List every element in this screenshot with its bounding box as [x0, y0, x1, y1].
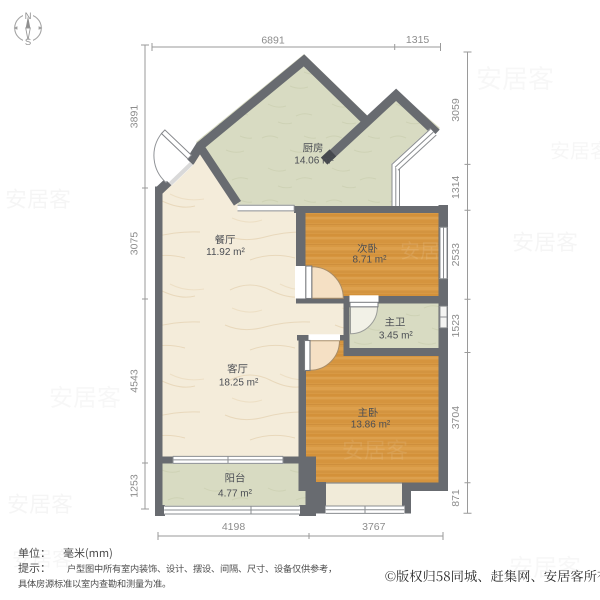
svg-text:3.45 m²: 3.45 m² [379, 330, 414, 341]
svg-text:2533: 2533 [450, 243, 462, 267]
svg-text:1315: 1315 [406, 34, 430, 46]
svg-text:3891: 3891 [129, 105, 141, 129]
svg-text:871: 871 [450, 489, 462, 507]
svg-text:4198: 4198 [222, 521, 246, 533]
svg-text:3704: 3704 [450, 406, 462, 430]
svg-text:3059: 3059 [450, 98, 462, 122]
svg-text:14.06 m²: 14.06 m² [294, 156, 334, 167]
svg-text:1253: 1253 [129, 474, 141, 498]
svg-text:3767: 3767 [362, 521, 386, 533]
svg-text:4.77 m²: 4.77 m² [218, 489, 253, 500]
svg-text:11.92 m²: 11.92 m² [206, 247, 245, 258]
svg-text:3075: 3075 [129, 232, 141, 256]
svg-text:13.86 m²: 13.86 m² [351, 419, 391, 430]
svg-text:8.71 m²: 8.71 m² [353, 254, 388, 265]
svg-text:6891: 6891 [261, 35, 285, 47]
svg-text:1523: 1523 [450, 314, 462, 338]
svg-text:4543: 4543 [129, 369, 141, 393]
svg-text:1314: 1314 [450, 175, 462, 199]
svg-text:18.25 m²: 18.25 m² [219, 378, 259, 389]
